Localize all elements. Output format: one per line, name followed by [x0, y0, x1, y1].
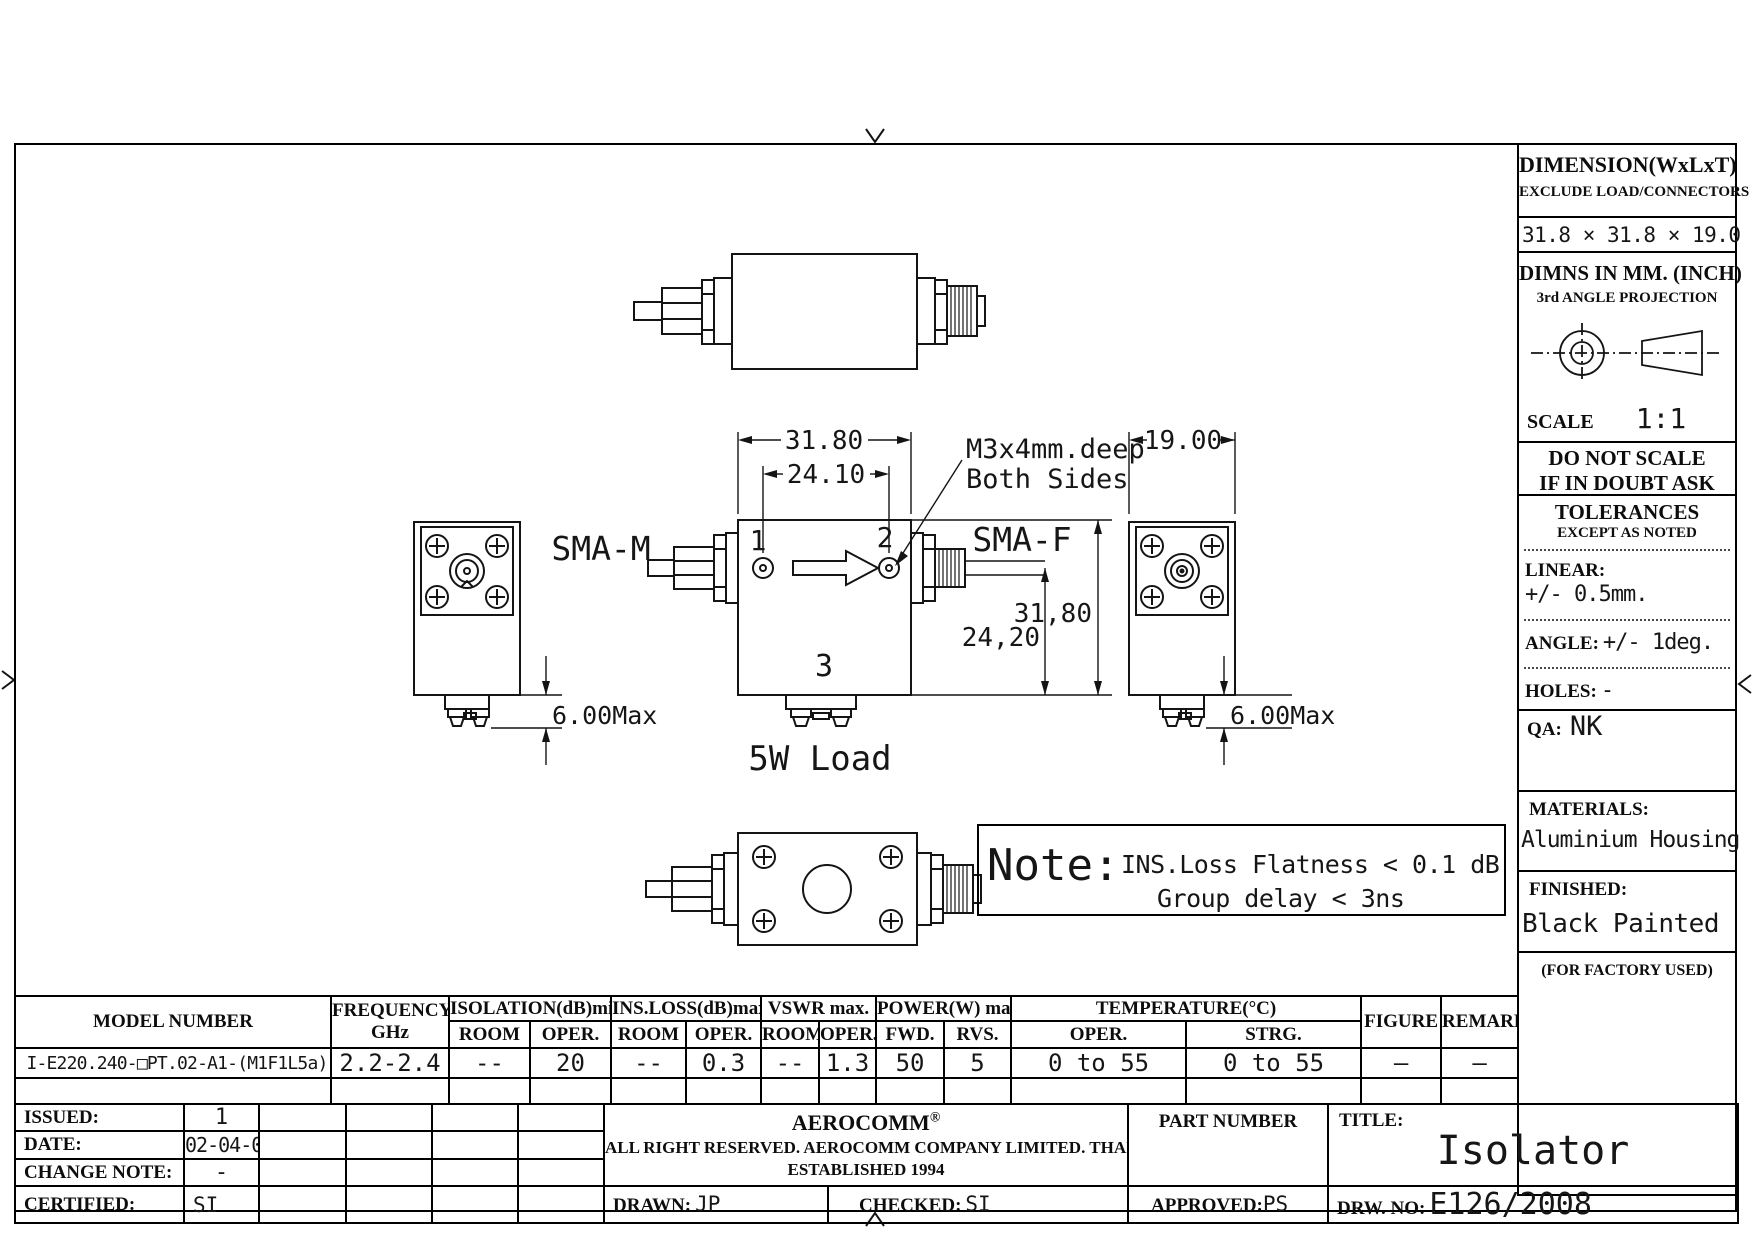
finished-value: Black Painted: [1519, 901, 1735, 939]
certified-value-cell: SI: [184, 1186, 259, 1223]
empty-cell: [449, 1078, 530, 1104]
empty-cell: [1011, 1078, 1186, 1104]
empty-cell: [761, 1078, 819, 1104]
change-note-value-cell: -: [184, 1159, 259, 1186]
issued-value-cell: 1: [184, 1104, 259, 1131]
title-block: ISSUED: 1 AEROCOMM® ALL RIGHT RESERVED. …: [14, 1103, 1739, 1224]
header-frequency: FREQUENCY GHz: [331, 996, 449, 1048]
sidebar: DIMENSION(WxLxT) EXCLUDE LOAD/CONNECTORS…: [1517, 143, 1737, 1196]
empty-cell: [346, 1104, 432, 1131]
cell-ins-loss-oper: 0.3: [686, 1048, 761, 1078]
company-name: AEROCOMM®: [605, 1110, 1127, 1136]
dimns-line2: 3rd ANGLE PROJECTION: [1519, 286, 1735, 307]
subheader-room: ROOM: [611, 1021, 686, 1048]
title-box: TITLE: Isolator: [1328, 1104, 1738, 1186]
qa-label: QA:: [1527, 719, 1562, 741]
subheader-oper: OPER.: [819, 1021, 876, 1048]
do-not-scale-line2: IF IN DOUBT ASK: [1519, 471, 1735, 496]
empty-cell: [876, 1078, 944, 1104]
registered-mark-icon: ®: [930, 1111, 940, 1126]
empty-cell: [432, 1104, 518, 1131]
materials-value: Aluminium Housing: [1519, 821, 1735, 853]
cell-vswr-room: --: [761, 1048, 819, 1078]
empty-cell: [518, 1131, 604, 1159]
empty-cell: [530, 1078, 611, 1104]
note-box: Note: INS.Loss Flatness < 0.1 dB Group d…: [977, 824, 1506, 916]
angle-label: ANGLE:: [1525, 633, 1599, 654]
approved-cell: APPROVED:PS: [1128, 1186, 1328, 1223]
subheader-fwd: FWD.: [876, 1021, 944, 1048]
header-figure: FIGURE: [1361, 996, 1441, 1048]
empty-cell: [518, 1159, 604, 1186]
empty-cell: [15, 1078, 331, 1104]
tolerances-subtitle: EXCEPT AS NOTED: [1519, 525, 1735, 542]
cell-isolation-room: --: [449, 1048, 530, 1078]
cell-remark: —: [1441, 1048, 1518, 1078]
dimension-title: DIMENSION(WxLxT): [1519, 145, 1735, 178]
header-vswr: VSWR max.: [761, 996, 876, 1021]
empty-cell: [518, 1186, 604, 1223]
subheader-rvs: RVS.: [944, 1021, 1011, 1048]
company-box: AEROCOMM® ALL RIGHT RESERVED. AEROCOMM C…: [604, 1104, 1128, 1186]
finished-label: FINISHED:: [1519, 872, 1735, 901]
company-line2: ALL RIGHT RESERVED. AEROCOMM COMPANY LIM…: [605, 1136, 1127, 1158]
cell-model: I-E220.240-□PT.02-A1-(M1F1L5a): [15, 1048, 331, 1078]
header-remark: REMARK: [1441, 996, 1518, 1048]
header-power: POWER(W) max.: [876, 996, 1011, 1021]
cell-figure: —: [1361, 1048, 1441, 1078]
empty-cell: [259, 1186, 346, 1223]
empty-cell: [686, 1078, 761, 1104]
date-value-cell: 02-04-08: [184, 1131, 259, 1159]
header-ins-loss: INS.LOSS(dB)max.: [611, 996, 761, 1021]
scale-label: SCALE: [1527, 411, 1594, 433]
empty-cell: [432, 1131, 518, 1159]
materials-label: MATERIALS:: [1519, 792, 1735, 821]
tolerances-box: TOLERANCES EXCEPT AS NOTED LINEAR: +/- 0…: [1517, 494, 1737, 711]
projection-box: DIMNS IN MM. (INCH) 3rd ANGLE PROJECTION…: [1517, 251, 1737, 443]
subheader-oper: OPER.: [1011, 1021, 1186, 1048]
dimension-value-box: 31.8 × 31.8 × 19.0: [1517, 216, 1737, 253]
finished-box: FINISHED: Black Painted: [1517, 870, 1737, 953]
angle-value: +/- 1deg.: [1603, 630, 1713, 655]
header-temperature: TEMPERATURE(°C): [1011, 996, 1361, 1021]
drawing-title: Isolator: [1329, 1128, 1737, 1174]
dimension-value: 31.8 × 31.8 × 19.0: [1519, 218, 1735, 252]
empty-cell: [611, 1078, 686, 1104]
do-not-scale-box: DO NOT SCALE IF IN DOUBT ASK: [1517, 441, 1737, 496]
empty-cell: [331, 1078, 449, 1104]
third-angle-projection-icon: [1527, 311, 1727, 395]
cell-isolation-oper: 20: [530, 1048, 611, 1078]
empty-cell: [944, 1078, 1011, 1104]
subheader-oper: OPER.: [530, 1021, 611, 1048]
empty-cell: [1441, 1078, 1518, 1104]
empty-cell: [259, 1131, 346, 1159]
spec-table: MODEL NUMBER FREQUENCY GHz ISOLATION(dB)…: [14, 995, 1519, 1105]
cell-temp-oper: 0 to 55: [1011, 1048, 1186, 1078]
drw-no-cell: DRW. NO: E126/2008: [1328, 1186, 1738, 1223]
tolerances-title: TOLERANCES: [1519, 496, 1735, 525]
qa-box: QA: NK: [1517, 709, 1737, 792]
drawn-cell: DRAWN: JP: [604, 1186, 828, 1223]
do-not-scale-line1: DO NOT SCALE: [1519, 443, 1735, 471]
empty-cell: [432, 1186, 518, 1223]
divider: [1524, 667, 1730, 669]
empty-cell: [1186, 1078, 1361, 1104]
qa-value: NK: [1570, 711, 1603, 742]
holes-value: -: [1601, 678, 1614, 703]
subheader-room: ROOM: [449, 1021, 530, 1048]
subheader-room: ROOM: [761, 1021, 819, 1048]
empty-cell: [259, 1159, 346, 1186]
subheader-oper: OPER.: [686, 1021, 761, 1048]
empty-cell: [819, 1078, 876, 1104]
header-isolation: ISOLATION(dB)min.: [449, 996, 611, 1021]
cell-power-fwd: 50: [876, 1048, 944, 1078]
cell-frequency: 2.2-2.4: [331, 1048, 449, 1078]
scale-row: SCALE 1:1: [1527, 402, 1727, 435]
empty-cell: [346, 1131, 432, 1159]
empty-cell: [432, 1159, 518, 1186]
divider: [1524, 549, 1730, 551]
scale-value: 1:1: [1636, 402, 1687, 435]
empty-cell: [518, 1104, 604, 1131]
linear-value: +/- 0.5mm.: [1525, 582, 1647, 607]
note-line1: INS.Loss Flatness < 0.1 dB: [1121, 850, 1499, 879]
cell-temp-strg: 0 to 55: [1186, 1048, 1361, 1078]
cell-vswr-oper: 1.3: [819, 1048, 876, 1078]
empty-cell: [346, 1159, 432, 1186]
factory-note: (FOR FACTORY USED): [1519, 953, 1735, 980]
cell-ins-loss-room: --: [611, 1048, 686, 1078]
company-line3: ESTABLISHED 1994: [605, 1158, 1127, 1180]
subheader-strg: STRG.: [1186, 1021, 1361, 1048]
empty-cell: [346, 1186, 432, 1223]
dimension-subtitle: EXCLUDE LOAD/CONNECTORS: [1519, 178, 1735, 201]
holes-label: HOLES:: [1525, 681, 1597, 702]
checked-cell: CHECKED: SI: [828, 1186, 1128, 1223]
certified-label-cell: CERTIFIED:: [15, 1186, 184, 1223]
cell-power-rvs: 5: [944, 1048, 1011, 1078]
change-note-label-cell: CHANGE NOTE:: [15, 1159, 184, 1186]
issued-label-cell: ISSUED:: [15, 1104, 184, 1131]
dimns-line1: DIMNS IN MM. (INCH): [1519, 253, 1735, 286]
note-line2: Group delay < 3ns: [1157, 884, 1404, 913]
linear-label: LINEAR:: [1525, 560, 1605, 581]
drawing-sheet: 31.80 24.10 19.00 SMA-M SMA-F 1 2 3 5W L…: [0, 0, 1754, 1240]
empty-cell: [1361, 1078, 1441, 1104]
materials-box: MATERIALS: Aluminium Housing: [1517, 790, 1737, 872]
header-model-number: MODEL NUMBER: [15, 996, 331, 1048]
part-number-box: PART NUMBER: [1128, 1104, 1328, 1186]
empty-cell: [259, 1104, 346, 1131]
note-title: Note:: [987, 840, 1119, 891]
date-label-cell: DATE:: [15, 1131, 184, 1159]
dimension-box: DIMENSION(WxLxT) EXCLUDE LOAD/CONNECTORS: [1517, 143, 1737, 218]
divider: [1524, 619, 1730, 621]
